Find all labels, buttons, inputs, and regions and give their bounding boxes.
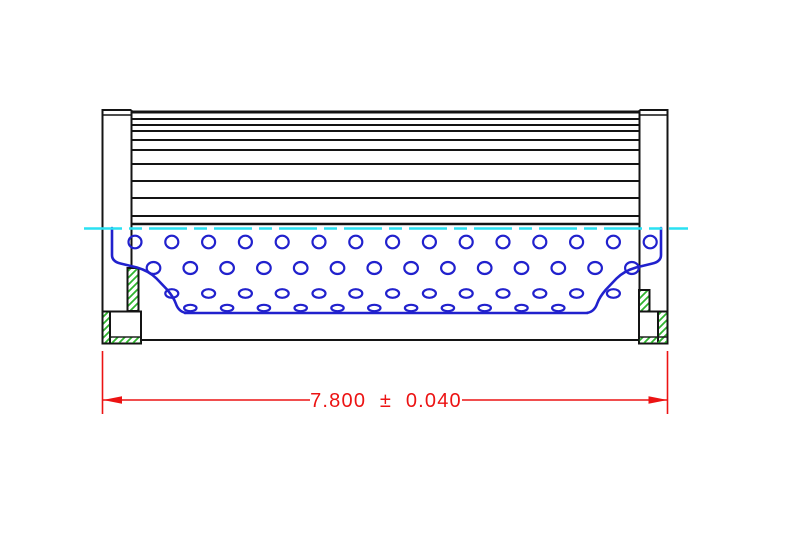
drawing-canvas: 7.800 ± 0.040 xyxy=(0,0,789,546)
right-foot xyxy=(639,312,668,344)
perforated-core-holes xyxy=(129,236,657,311)
right-arrow-icon xyxy=(649,396,668,404)
dimension: 7.800 ± 0.040 xyxy=(103,351,668,414)
right-cap-section-hatch xyxy=(639,290,650,312)
left-seam-profile xyxy=(112,228,186,313)
technical-drawing: 7.800 ± 0.040 xyxy=(0,0,789,546)
left-foot xyxy=(103,312,142,344)
pleated-media xyxy=(132,112,640,224)
dimension-label: 7.800 ± 0.040 xyxy=(310,390,462,412)
right-end-cap xyxy=(639,110,668,312)
left-arrow-icon xyxy=(103,396,122,404)
right-foot-bottom-hatch xyxy=(639,337,668,344)
left-foot-bottom-hatch xyxy=(110,337,141,344)
left-cap-section-hatch xyxy=(128,268,139,311)
left-foot-hatch xyxy=(103,312,111,344)
